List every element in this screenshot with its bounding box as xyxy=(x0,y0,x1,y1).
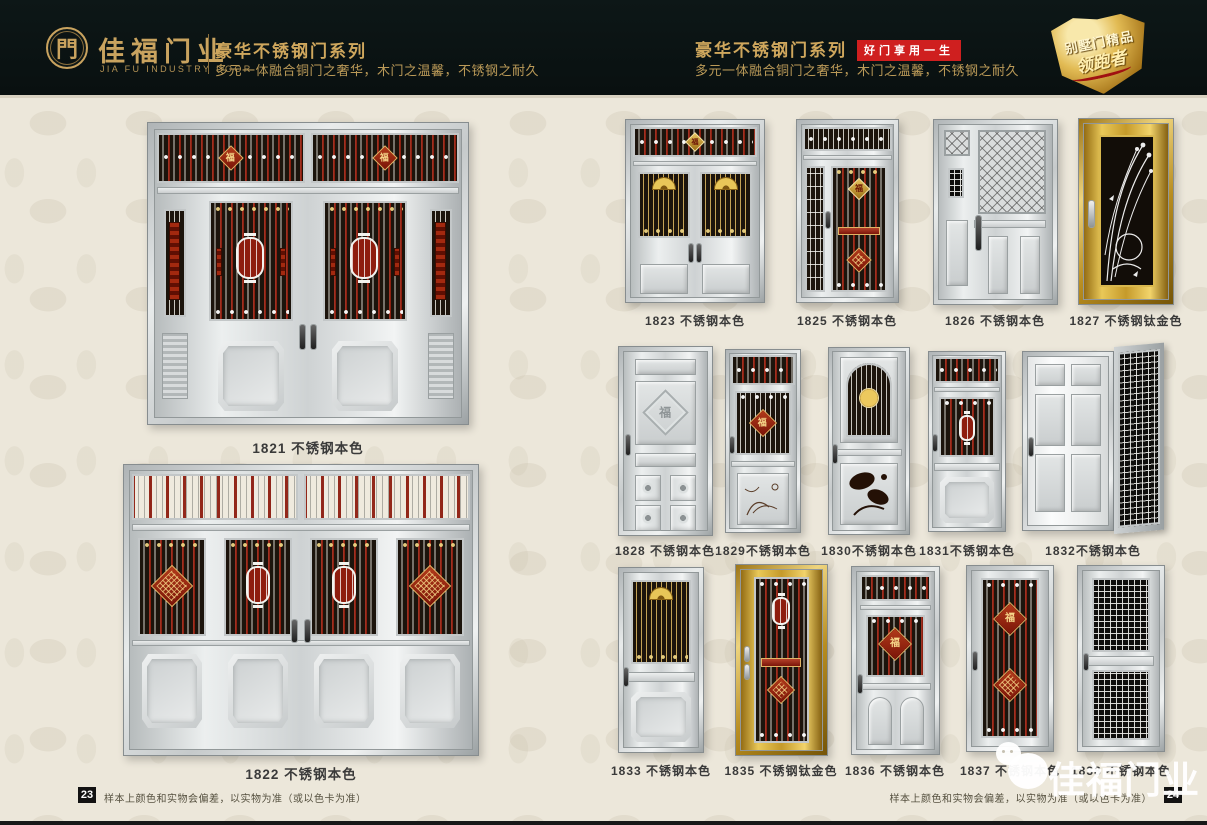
arch-recessed-panel xyxy=(900,697,924,745)
ornament-dots xyxy=(863,585,928,591)
door-1827-image xyxy=(1078,118,1174,305)
leaf-window-grille xyxy=(310,538,378,636)
door-1838-body xyxy=(1082,570,1160,747)
grille-crossbars xyxy=(807,168,823,290)
leaf-window-grille xyxy=(209,201,293,321)
perforated-panel xyxy=(1092,578,1150,652)
leaf-window-grille xyxy=(939,397,995,457)
door-label-1829: 1829不锈钢本色 xyxy=(715,542,811,559)
ornament-dots xyxy=(834,282,884,288)
door-1827-body xyxy=(1083,123,1169,300)
watermark-brand-text: 佳福门业 xyxy=(1048,750,1200,804)
tassel-ornament xyxy=(395,249,399,275)
door-rail xyxy=(836,449,902,456)
slogan-badge: 好门享用一生 xyxy=(857,40,961,61)
door-handle xyxy=(626,435,630,455)
recessed-panel xyxy=(1071,394,1101,446)
fu-diamond-ornament: 福 xyxy=(374,147,397,170)
door-label-1833: 1833 不锈钢本色 xyxy=(611,762,711,779)
emboss-panel xyxy=(228,654,288,728)
emboss-diamond: 福 xyxy=(642,389,689,436)
lantern-ornament xyxy=(772,597,790,625)
lantern-ornament xyxy=(350,237,378,279)
ornament-dots xyxy=(984,582,1036,588)
door-1836-body: 福 xyxy=(856,571,935,750)
brand-watermark: 佳福门业 xyxy=(982,742,1197,808)
leaf-window-grille xyxy=(638,172,690,238)
series-subtitle-right: 多元一体融合铜门之奢华，木门之温馨，不锈钢之耐久 xyxy=(695,60,1019,79)
knot-diamond-ornament xyxy=(410,566,450,606)
intercom-unit xyxy=(948,168,964,198)
door-handle xyxy=(858,675,862,693)
leaf-window-grille xyxy=(700,172,752,238)
red-bar-ornament xyxy=(762,659,800,666)
door-handle xyxy=(292,620,297,642)
tassel-ornament xyxy=(281,249,285,275)
door-1822-body xyxy=(129,470,473,750)
mesh-window xyxy=(944,130,970,156)
fu-diamond-ornament: 福 xyxy=(994,603,1025,634)
door-rail xyxy=(132,524,470,531)
door-1822-image xyxy=(123,464,479,756)
logo-glyph: 門 xyxy=(56,32,78,64)
door-handle xyxy=(745,647,749,661)
door-1825-body: 福 xyxy=(801,124,894,298)
firecracker-ornament xyxy=(170,223,179,299)
side-panel-grille xyxy=(805,166,825,292)
ornament-dots xyxy=(757,581,806,587)
transom-grille xyxy=(934,357,1000,383)
door-label-1830: 1830不锈钢本色 xyxy=(821,542,917,559)
leaf-window-grille: 福 xyxy=(866,615,925,677)
door-1826-image xyxy=(933,119,1058,305)
ornament-dots xyxy=(738,394,788,400)
door-handle xyxy=(311,325,316,349)
door-handle xyxy=(1089,201,1094,227)
ornament-dots xyxy=(703,228,749,234)
ornament-dots xyxy=(942,400,992,406)
bead-curtain-window: 福 xyxy=(735,391,791,455)
door-handle xyxy=(1029,438,1033,456)
fan-ornament xyxy=(653,178,675,189)
door-1832-frame xyxy=(1022,351,1114,531)
emboss-panel xyxy=(702,264,750,294)
series-title-right-row: 豪华不锈钢门系列好门享用一生 xyxy=(695,36,961,61)
perforated-panel xyxy=(1092,670,1150,740)
ornament-dots xyxy=(734,367,792,373)
header-divider xyxy=(208,34,209,74)
ornament-dots xyxy=(834,169,884,175)
catalog-page: 門 佳福门业 JIA FU INDUSTRY DOOR 豪华不锈钢门系列 多元一… xyxy=(0,0,1207,825)
knot-diamond-ornament xyxy=(152,566,192,606)
etched-art-panel xyxy=(840,463,898,525)
transom-grille xyxy=(803,127,892,151)
arch-grille xyxy=(846,363,892,437)
ornament-dots xyxy=(327,206,403,212)
ornament-dots xyxy=(757,732,806,738)
door-rail xyxy=(803,155,892,160)
transom-grille xyxy=(132,474,298,520)
door-1835-image xyxy=(735,564,828,756)
knot-diamond-ornament xyxy=(848,249,871,272)
transom-grille: 福 xyxy=(311,133,459,183)
leaf-window-grille xyxy=(396,538,464,636)
door-handle xyxy=(624,668,628,686)
ornament-dots xyxy=(400,542,460,548)
emboss-strip xyxy=(635,359,696,375)
recessed-panel xyxy=(1071,364,1101,386)
fu-diamond-ornament: 福 xyxy=(220,147,243,170)
door-1829-image: 福 xyxy=(725,349,801,533)
leaf-window-grille xyxy=(754,577,809,743)
door-1836-image: 福 xyxy=(851,566,940,755)
door-rail xyxy=(860,683,931,690)
door-1829-body: 福 xyxy=(729,353,797,529)
emboss-panel xyxy=(218,341,284,411)
ornament-dots xyxy=(213,309,289,315)
emboss-strip xyxy=(635,453,696,467)
chat-bubble-icon xyxy=(1008,753,1048,789)
rosette-panel xyxy=(635,475,661,501)
door-1832-image xyxy=(1022,347,1165,534)
door-label-1836: 1836 不锈钢本色 xyxy=(845,762,945,779)
red-diamond-ornament: 福 xyxy=(750,410,775,435)
door-handle xyxy=(305,620,310,642)
door-handle xyxy=(300,325,305,349)
recessed-panel xyxy=(988,236,1008,294)
door-1825-image: 福 xyxy=(796,119,899,303)
door-1833-image xyxy=(618,567,704,753)
recessed-panel xyxy=(1071,454,1101,512)
recessed-panel xyxy=(1020,236,1040,294)
lantern-ornament xyxy=(332,566,356,604)
door-handle xyxy=(1084,654,1088,670)
rosette-panel xyxy=(635,505,661,531)
emboss-panel xyxy=(940,477,994,523)
leaf-window-grille xyxy=(631,580,691,664)
page-number-left: 23 xyxy=(78,787,96,803)
gold-medallion-ornament xyxy=(860,389,878,407)
emboss-panel xyxy=(332,341,398,411)
door-1821-body: 福 福 xyxy=(154,129,462,418)
ornament-dots xyxy=(213,206,289,212)
fan-ornament xyxy=(715,178,737,189)
door-handle xyxy=(973,652,977,670)
ornament-dots xyxy=(327,309,403,315)
door-rail xyxy=(1088,656,1154,666)
shield-badge: 别墅门精品 领跑者 xyxy=(1047,6,1154,98)
recessed-panel xyxy=(946,220,968,286)
transom-grille xyxy=(304,474,470,520)
emboss-panel xyxy=(631,692,691,742)
door-1830-image xyxy=(828,347,910,535)
door-1821-image: 福 福 xyxy=(147,122,469,425)
door-rail xyxy=(934,463,1000,471)
door-1832-body xyxy=(1027,356,1109,526)
ornament-dots xyxy=(869,618,922,624)
door-handle xyxy=(697,244,701,262)
transom-grille xyxy=(860,575,931,601)
door-label-1831: 1831不锈钢本色 xyxy=(919,542,1015,559)
arch-window-panel xyxy=(840,357,898,443)
door-1837-body: 福 xyxy=(971,570,1049,747)
door-handle xyxy=(833,445,837,463)
leaf-window-grille xyxy=(323,201,407,321)
door-handle xyxy=(730,437,734,453)
fu-diamond-ornament: 福 xyxy=(879,628,910,659)
door-label-1825: 1825 不锈钢本色 xyxy=(797,312,897,329)
series-title-right: 豪华不锈钢门系列 xyxy=(695,41,847,60)
door-1835-body xyxy=(740,569,823,751)
arch-recessed-panel xyxy=(868,697,892,745)
tassel-ornament xyxy=(331,249,335,275)
side-panel-grille xyxy=(164,209,186,317)
ornament-dots xyxy=(228,542,288,548)
transom-grille xyxy=(731,355,795,385)
door-rail xyxy=(627,672,695,682)
door-1837-image: 福 xyxy=(966,565,1054,752)
perforated-panel xyxy=(1118,349,1160,528)
series-subtitle-left: 多元一体融合铜门之奢华，木门之温馨，不锈钢之耐久 xyxy=(215,60,539,79)
series-title-left: 豪华不锈钢门系列 xyxy=(215,37,367,62)
recessed-panel xyxy=(1035,454,1065,512)
door-label-1821: 1821 不锈钢本色 xyxy=(252,437,363,457)
rosette-panel xyxy=(670,475,696,501)
door-label-1835: 1835 不锈钢钛金色 xyxy=(724,762,837,779)
brand-logo-icon: 門 xyxy=(46,27,88,69)
door-handle xyxy=(745,665,749,679)
ornament-dots xyxy=(806,136,889,142)
lantern-ornament xyxy=(959,415,975,441)
door-1826-body xyxy=(938,124,1053,300)
door-1830-body xyxy=(832,351,906,531)
emboss-panel xyxy=(640,264,688,294)
side-panel-grooves xyxy=(162,333,188,399)
etched-art-panel xyxy=(737,473,789,525)
fan-ornament xyxy=(650,588,672,599)
leaf-window-grille: 福 xyxy=(831,166,887,292)
lantern-ornament xyxy=(236,237,264,279)
scroll-art-window xyxy=(1099,135,1155,287)
door-label-1823: 1823 不锈钢本色 xyxy=(645,312,745,329)
lantern-ornament xyxy=(246,566,270,604)
door-rail xyxy=(974,220,1046,228)
recessed-panel xyxy=(1035,394,1065,446)
door-label-1822: 1822 不锈钢本色 xyxy=(245,763,356,783)
rosette-panel xyxy=(670,505,696,531)
door-handle xyxy=(976,216,981,250)
knot-diamond-ornament xyxy=(768,677,793,702)
transom-grille: 福 xyxy=(157,133,305,183)
peacock-scroll-art xyxy=(1099,135,1155,287)
door-1838-image xyxy=(1077,565,1165,752)
crane-etch-art xyxy=(737,473,789,525)
open-mesh-leaf xyxy=(1114,343,1164,534)
door-rail xyxy=(731,461,795,467)
door-handle xyxy=(933,435,937,451)
door-1823-image: 福 xyxy=(625,119,765,303)
door-handle xyxy=(689,244,693,262)
door-1833-body xyxy=(623,572,699,748)
door-1828-image: 福 xyxy=(618,346,713,536)
disclaimer-left: 样本上颜色和实物会偏差，以实物为准（或以色卡为准） xyxy=(104,790,367,805)
side-panel-grille xyxy=(430,209,452,317)
ornament-dots xyxy=(314,542,374,548)
door-1831-body xyxy=(932,355,1002,528)
door-1823-body: 福 xyxy=(630,124,760,298)
leaf-window-grille xyxy=(224,538,292,636)
side-panel-grooves xyxy=(428,333,454,399)
door-label-1832: 1832不锈钢本色 xyxy=(1045,542,1141,559)
header-bar: 門 佳福门业 JIA FU INDUSTRY DOOR 豪华不锈钢门系列 多元一… xyxy=(0,0,1207,98)
door-rail xyxy=(633,161,757,166)
knot-diamond-ornament xyxy=(994,669,1025,700)
ornament-dots xyxy=(984,727,1036,733)
leaf-window-grille: 福 xyxy=(981,578,1039,738)
ornament-dots xyxy=(641,228,687,234)
door-rail xyxy=(132,640,470,646)
leaf-window-grille xyxy=(138,538,206,636)
fu-diamond-ornament: 福 xyxy=(849,179,869,199)
door-rail xyxy=(157,187,459,194)
mesh-window xyxy=(978,130,1046,214)
door-label-1828: 1828 不锈钢本色 xyxy=(615,542,715,559)
emboss-panel: 福 xyxy=(635,381,696,445)
door-handle xyxy=(826,212,830,228)
door-label-1827: 1827 不锈钢钛金色 xyxy=(1069,312,1182,329)
door-rail xyxy=(860,605,931,610)
door-rail xyxy=(934,387,1000,392)
lotus-art xyxy=(840,463,898,525)
red-bar-ornament xyxy=(839,228,879,234)
fu-diamond-ornament: 福 xyxy=(687,134,704,151)
ornament-dots xyxy=(142,542,202,548)
door-label-1826: 1826 不锈钢本色 xyxy=(945,312,1045,329)
transom-grille: 福 xyxy=(633,127,757,157)
door-1828-body: 福 xyxy=(623,351,708,531)
tassel-ornament xyxy=(217,249,221,275)
firecracker-ornament xyxy=(436,223,445,299)
recessed-panel xyxy=(1035,364,1065,386)
ornament-dots xyxy=(937,367,997,373)
emboss-panel xyxy=(314,654,374,728)
emboss-panel xyxy=(142,654,202,728)
bottom-edge-strip xyxy=(0,821,1207,825)
emboss-panel xyxy=(400,654,460,728)
door-1831-image xyxy=(928,351,1006,532)
ornament-dots xyxy=(634,654,688,660)
